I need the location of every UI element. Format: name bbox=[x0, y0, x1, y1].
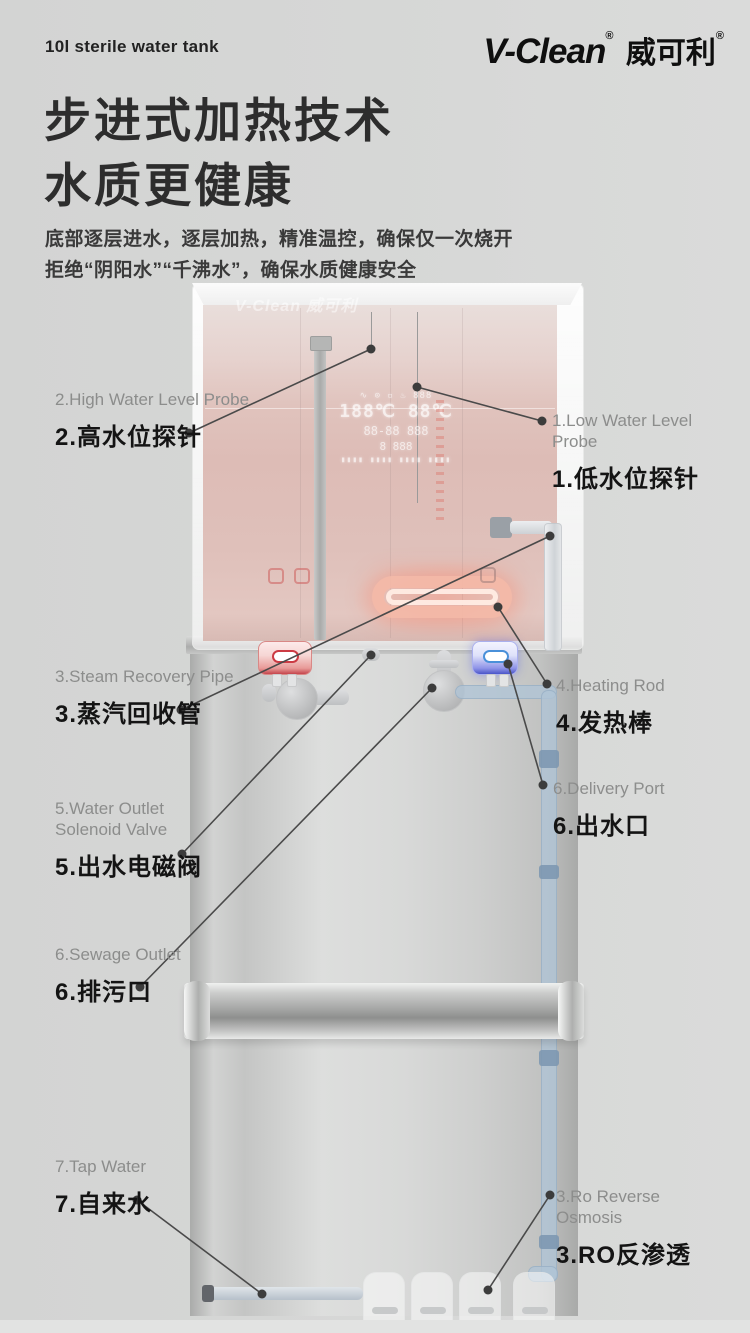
steam-pipe-vertical bbox=[544, 523, 562, 651]
label-en: 6.Delivery Port bbox=[553, 778, 664, 799]
valve-nipple bbox=[272, 674, 282, 687]
label-en: 5.Water Outlet Solenoid Valve bbox=[55, 798, 202, 840]
label-cn: 2.高水位探针 bbox=[55, 417, 249, 452]
drain-icon bbox=[268, 568, 284, 584]
filter-cartridge bbox=[513, 1272, 555, 1324]
pipe-fitting bbox=[539, 865, 559, 879]
blue-valve-indicator bbox=[483, 650, 509, 663]
filter-cartridge bbox=[411, 1272, 453, 1324]
center-flange bbox=[429, 660, 459, 668]
band-cap-right bbox=[558, 981, 584, 1041]
label-delivery-port: 6.Delivery Port 6.出水口 bbox=[553, 778, 664, 841]
label-cn: 1.低水位探针 bbox=[552, 459, 699, 494]
filter-slot bbox=[468, 1307, 494, 1314]
brand-en: V-Clean bbox=[483, 32, 605, 71]
display-side-markers bbox=[436, 400, 444, 520]
page-title: 步进式加热技术 水质更健康 bbox=[44, 88, 394, 218]
filter-slot bbox=[522, 1307, 548, 1314]
lock-icon bbox=[294, 568, 310, 584]
valve-nipple bbox=[499, 674, 509, 687]
brand-logo: V-Clean® 威可利® bbox=[483, 28, 724, 72]
label-en: 2.High Water Level Probe bbox=[55, 389, 249, 410]
temp-sensor-nut bbox=[310, 336, 332, 351]
label-ro-reverse-osmosis: 3.Ro Reverse Osmosis 3.RO反渗透 bbox=[556, 1186, 691, 1270]
floor bbox=[0, 1320, 750, 1333]
tap-pipe-cap bbox=[202, 1285, 214, 1302]
label-en: 4.Heating Rod bbox=[556, 675, 665, 696]
label-cn: 7.自来水 bbox=[55, 1184, 152, 1219]
label-cn: 6.排污口 bbox=[55, 972, 181, 1007]
high-level-probe-rod bbox=[371, 312, 372, 350]
title-line-2: 水质更健康 bbox=[44, 153, 394, 218]
pipe-fitting bbox=[539, 1050, 559, 1066]
steam-pipe-fitting bbox=[490, 517, 512, 538]
poster: 10l sterile water tank V-Clean® 威可利® 步进式… bbox=[0, 0, 750, 1333]
temp-sensor-rod bbox=[314, 344, 326, 640]
label-cn: 3.蒸汽回收管 bbox=[55, 694, 234, 729]
label-en: 7.Tap Water bbox=[55, 1156, 152, 1177]
filter-cartridge bbox=[363, 1272, 405, 1324]
title-line-1: 步进式加热技术 bbox=[44, 88, 394, 153]
tap-water-pipe bbox=[205, 1287, 363, 1300]
metal-band bbox=[184, 983, 584, 1039]
filter-slot bbox=[420, 1307, 446, 1314]
label-en: 1.Low Water Level Probe bbox=[552, 410, 699, 452]
valve-nipple bbox=[287, 674, 297, 687]
label-heating-rod: 4.Heating Rod 4.发热棒 bbox=[556, 675, 665, 738]
label-en: 3.Ro Reverse Osmosis bbox=[556, 1186, 691, 1228]
label-steam-recovery-pipe: 3.Steam Recovery Pipe 3.蒸汽回收管 bbox=[55, 666, 234, 729]
heating-element-core bbox=[386, 589, 498, 605]
machine-body bbox=[190, 648, 578, 1316]
tagline: 10l sterile water tank bbox=[45, 37, 219, 57]
desc-line-1: 底部逐层进水，逐层加热，精准温控，确保仅一次烧开 bbox=[45, 224, 513, 255]
registered-mark-icon: ® bbox=[716, 30, 724, 42]
valve-nipple bbox=[486, 674, 496, 687]
filter-cartridge bbox=[459, 1272, 501, 1324]
label-cn: 5.出水电磁阀 bbox=[55, 847, 202, 882]
registered-mark-icon: ® bbox=[605, 30, 613, 42]
label-water-outlet-solenoid-valve: 5.Water Outlet Solenoid Valve 5.出水电磁阀 bbox=[55, 798, 202, 882]
label-low-water-level-probe: 1.Low Water Level Probe 1.低水位探针 bbox=[552, 410, 699, 494]
tank-watermark: V-Clean 威可利 bbox=[235, 292, 357, 316]
label-cn: 6.出水口 bbox=[553, 806, 664, 841]
pipe-fitting bbox=[539, 750, 559, 768]
brand-cn: 威可利 bbox=[626, 37, 716, 70]
band-cap-left bbox=[184, 981, 210, 1041]
label-en: 6.Sewage Outlet bbox=[55, 944, 181, 965]
tank-seam bbox=[300, 308, 301, 638]
label-high-water-level-probe: 2.High Water Level Probe 2.高水位探针 bbox=[55, 389, 249, 452]
label-sewage-outlet: 6.Sewage Outlet 6.排污口 bbox=[55, 944, 181, 1007]
description: 底部逐层进水，逐层加热，精准温控，确保仅一次烧开 拒绝“阴阳水”“千沸水”，确保… bbox=[45, 224, 513, 286]
red-valve-indicator bbox=[272, 650, 299, 663]
label-tap-water: 7.Tap Water 7.自来水 bbox=[55, 1156, 152, 1219]
lock-icon bbox=[480, 567, 496, 583]
label-cn: 3.RO反渗透 bbox=[556, 1235, 691, 1270]
desc-line-2: 拒绝“阴阳水”“千沸水”，确保水质健康安全 bbox=[45, 255, 513, 286]
label-cn: 4.发热棒 bbox=[556, 703, 665, 738]
label-en: 3.Steam Recovery Pipe bbox=[55, 666, 234, 687]
filter-slot bbox=[372, 1307, 398, 1314]
outlet-fitting bbox=[362, 648, 380, 661]
steam-valve-pump bbox=[276, 678, 318, 720]
